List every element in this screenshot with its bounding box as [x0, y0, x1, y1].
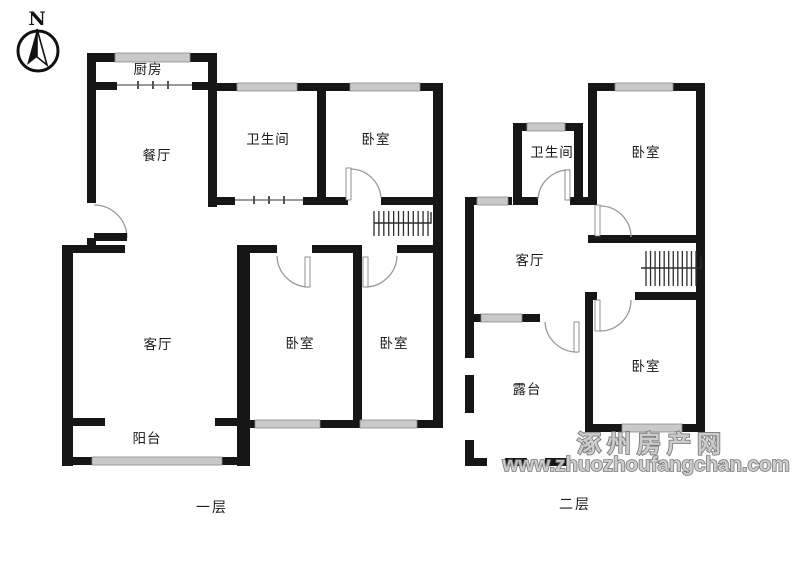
- compass-needle-light: [37, 29, 47, 65]
- watermark-site-url: www.zhuozhoufangchan.com: [501, 453, 789, 476]
- compass-north-label: N: [28, 8, 45, 30]
- floorplan-image: 厨房餐厅卫生间卧室客厅卧室卧室阳台卫生间卧室客厅卧室露台 N 涿州房产网 www…: [0, 0, 800, 570]
- floor-2-caption: 二层: [540, 494, 610, 514]
- watermark: 涿州房产网 www.zhuozhoufangchan.com: [501, 430, 789, 476]
- north-compass: N: [18, 8, 58, 71]
- overlay-layer: N 涿州房产网 www.zhuozhoufangchan.com: [0, 0, 800, 570]
- floor-1-caption: 一层: [177, 497, 247, 517]
